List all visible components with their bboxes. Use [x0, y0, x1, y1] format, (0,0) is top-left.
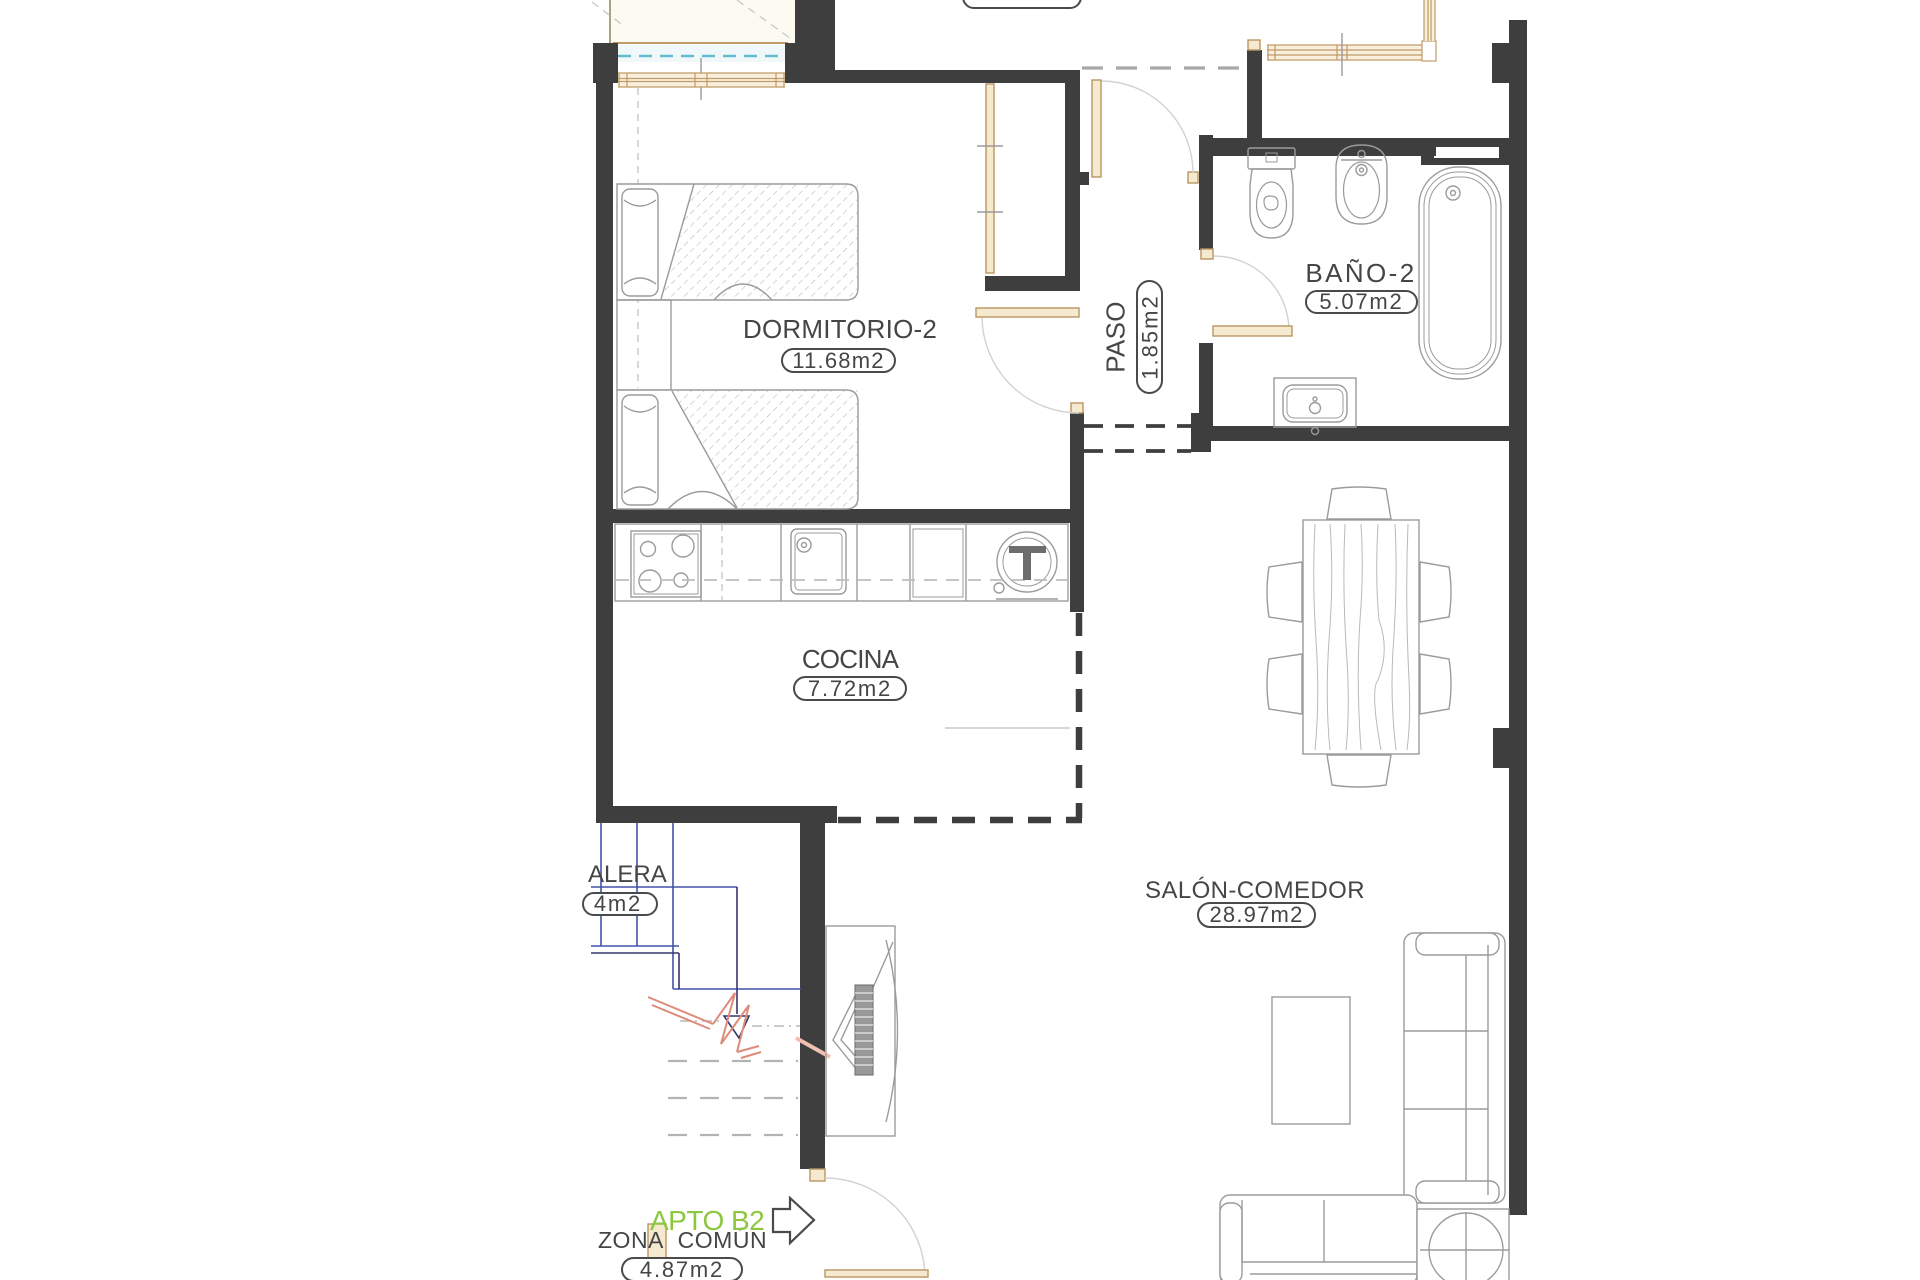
svg-text:1.85m2: 1.85m2 [1138, 294, 1163, 379]
svg-text:ALERA: ALERA [588, 861, 667, 888]
svg-text:APTO B2: APTO B2 [650, 1205, 764, 1236]
svg-text:PASO: PASO [1101, 301, 1131, 373]
svg-text:4.87m2: 4.87m2 [640, 1257, 724, 1280]
svg-text:5.07m2: 5.07m2 [1319, 289, 1403, 314]
svg-text:11.68m2: 11.68m2 [792, 348, 884, 373]
svg-text:7.72m2: 7.72m2 [808, 676, 892, 701]
svg-text:COCINA: COCINA [802, 644, 900, 674]
svg-text:DORMITORIO-2: DORMITORIO-2 [743, 314, 937, 344]
svg-text:BAÑO-2: BAÑO-2 [1305, 258, 1416, 288]
svg-text:4m2: 4m2 [594, 891, 642, 916]
svg-text:28.97m2: 28.97m2 [1209, 902, 1303, 927]
svg-text:SALÓN-COMEDOR: SALÓN-COMEDOR [1145, 877, 1365, 904]
